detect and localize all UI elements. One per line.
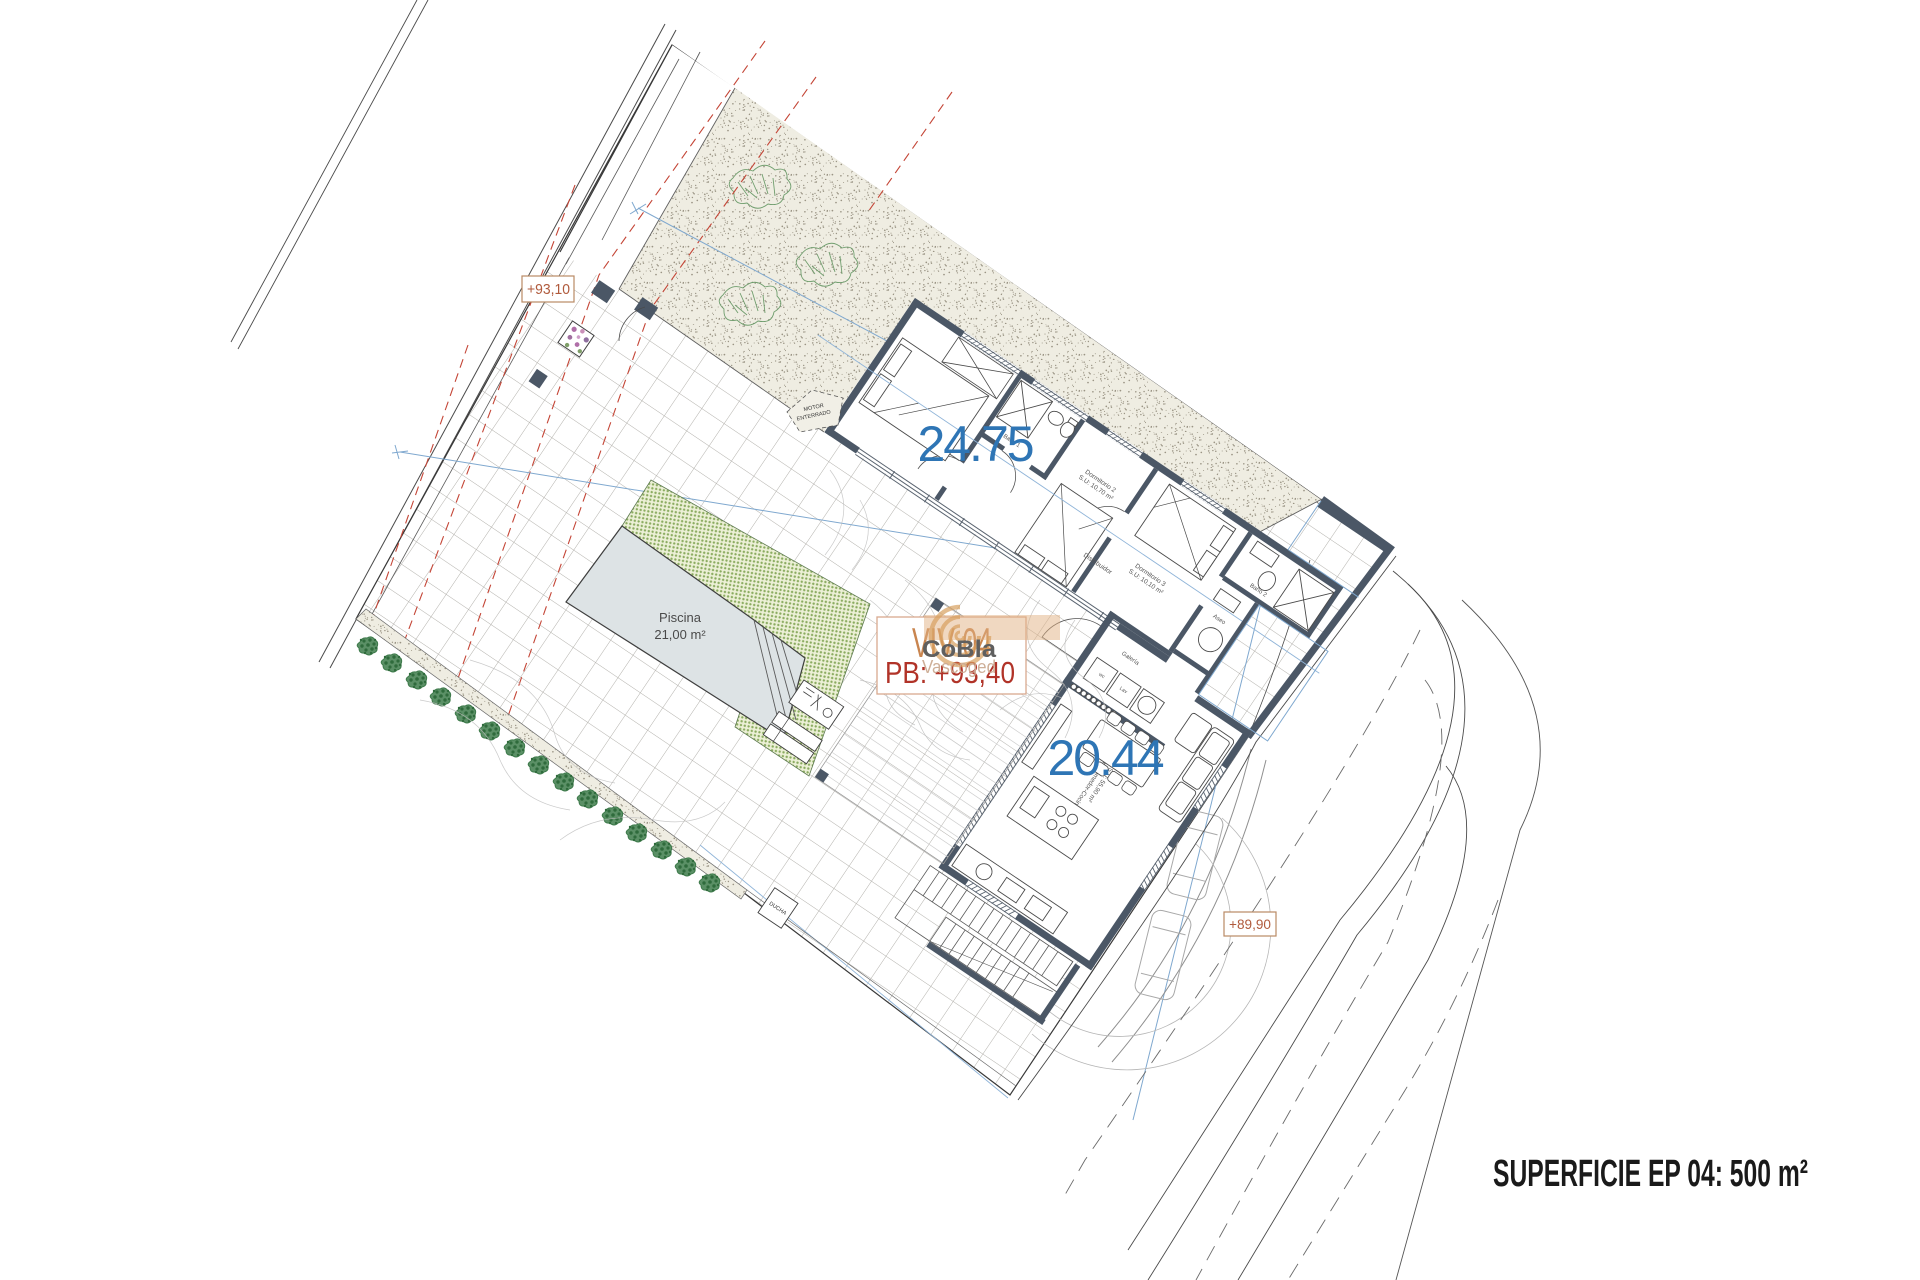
svg-text:20.44: 20.44: [1047, 730, 1163, 786]
svg-text:21,00 m²: 21,00 m²: [654, 627, 706, 642]
svg-text:Vascoged: Vascoged: [922, 657, 996, 677]
svg-text:24.75: 24.75: [917, 416, 1032, 472]
svg-text:+89,90: +89,90: [1229, 916, 1271, 932]
svg-text:SUPERFICIE EP 04: 500 m²: SUPERFICIE EP 04: 500 m²: [1493, 1153, 1808, 1195]
svg-text:+93,10: +93,10: [527, 281, 570, 298]
svg-text:Piscina: Piscina: [659, 610, 702, 625]
